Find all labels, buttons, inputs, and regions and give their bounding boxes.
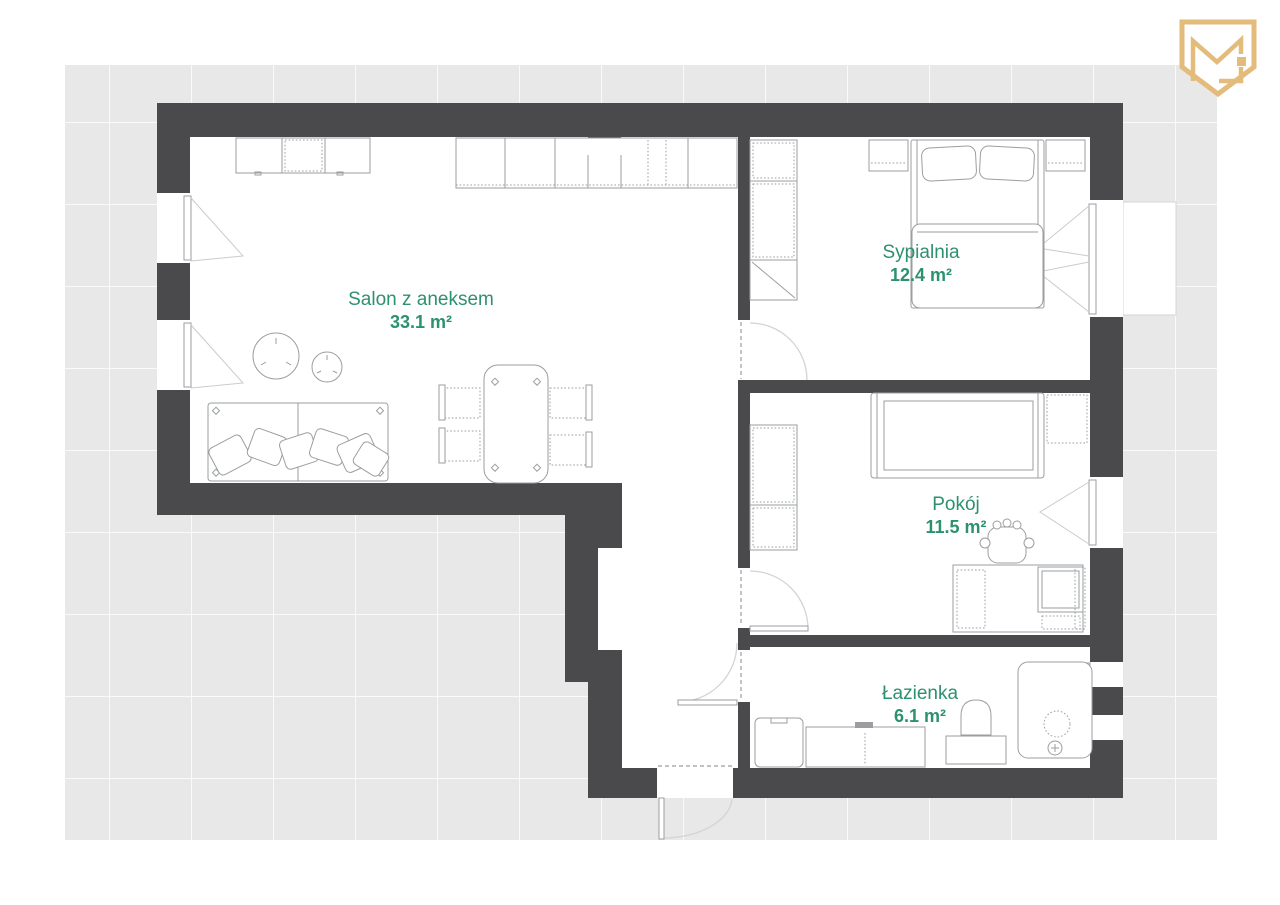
room-label-sypialnia: Sypialnia 12.4 m² xyxy=(882,241,959,287)
sofa xyxy=(207,403,391,481)
monogram-shield-logo-icon xyxy=(1178,10,1270,104)
room-area: 33.1 m² xyxy=(348,311,494,334)
exterior-window-sill xyxy=(1123,202,1176,315)
bedroom-closet xyxy=(750,140,797,300)
room-area: 12.4 m² xyxy=(882,264,959,287)
room-name: Sypialnia xyxy=(882,241,959,264)
nightstand-right xyxy=(1046,140,1085,171)
round-table-large xyxy=(253,333,299,379)
room-name: Salon z aneksem xyxy=(348,288,494,311)
sideboard xyxy=(236,138,370,175)
room-wardrobe xyxy=(750,425,797,550)
room-label-lazienka: Łazienka 6.1 m² xyxy=(882,682,958,728)
shower xyxy=(1018,662,1092,758)
nightstand-left xyxy=(869,140,908,171)
room-label-pokoj: Pokój 11.5 m² xyxy=(925,493,986,539)
floor-plan-drawing xyxy=(0,0,1280,905)
corridor-floor xyxy=(620,483,738,768)
round-table-small xyxy=(312,352,342,382)
dining-table xyxy=(484,365,548,483)
room-name: Łazienka xyxy=(882,682,958,705)
kitchen-cabinets xyxy=(456,138,737,188)
room-area: 6.1 m² xyxy=(882,705,958,728)
desk xyxy=(953,565,1083,632)
daybed xyxy=(871,393,1044,478)
room-label-salon: Salon z aneksem 33.1 m² xyxy=(348,288,494,334)
room-area: 11.5 m² xyxy=(925,516,986,539)
bathroom-counter xyxy=(806,722,925,767)
corridor-niche-floor xyxy=(598,548,622,650)
room-name: Pokój xyxy=(925,493,986,516)
washing-machine xyxy=(755,718,803,767)
floor-plan-page: Salon z aneksem 33.1 m² Sypialnia 12.4 m… xyxy=(0,0,1280,905)
